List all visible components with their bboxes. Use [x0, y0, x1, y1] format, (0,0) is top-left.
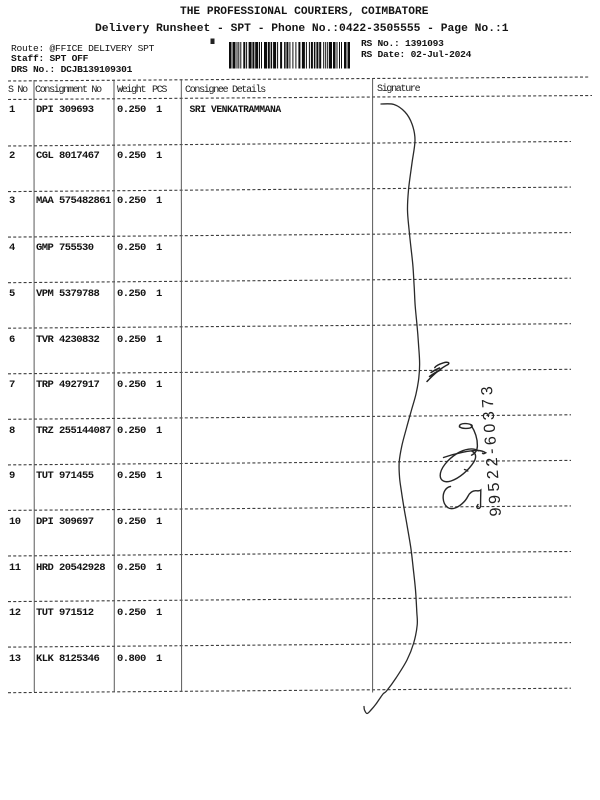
svg-text:99522-60373: 99522-60373 [479, 382, 505, 517]
